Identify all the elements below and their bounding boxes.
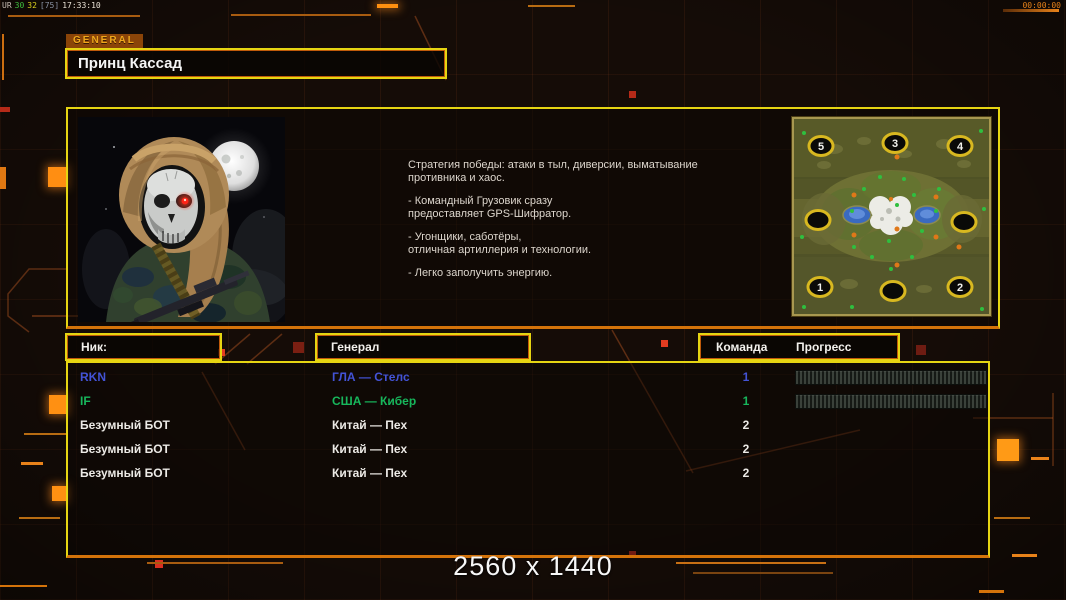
decor-dash — [1031, 457, 1049, 460]
debug-token: [75] — [40, 1, 59, 10]
strategy-line: отличная артиллерия и технологии. — [408, 244, 728, 257]
player-row: Безумный БОТ Китай — Пех 2 — [68, 437, 988, 461]
player-progress-bar — [795, 370, 987, 385]
strategy-line: - Легко заполучить энергию. — [408, 267, 728, 280]
svg-text:1: 1 — [817, 282, 823, 294]
start-position-marker: 3 — [883, 134, 907, 153]
general-portrait — [78, 117, 285, 322]
decor-dash — [0, 167, 6, 189]
strategy-line: - Командный Грузовик сразу — [408, 195, 728, 208]
decor-dash — [377, 4, 398, 8]
player-team: 2 — [718, 418, 774, 432]
debug-clock: 17:33:10 — [62, 1, 101, 10]
player-row: IF США — Кибер 1 — [68, 389, 988, 413]
minimap-image: 5 3 4 — [794, 119, 989, 314]
decor-dash — [21, 462, 43, 465]
strategy-line: предоставляет GPS-Шифратор. — [408, 208, 728, 221]
player-row: Безумный БОТ Китай — Пех 2 — [68, 413, 988, 437]
player-general: Китай — Пех — [332, 418, 718, 432]
strategy-paragraph: Стратегия победы: атаки в тыл, диверсии,… — [408, 159, 728, 185]
decor-square — [916, 345, 926, 355]
svg-text:3: 3 — [892, 138, 898, 150]
decor-dash — [19, 517, 60, 519]
start-position-marker: 5 — [809, 137, 833, 156]
debug-overlay: UR3032[75]17:33:10 — [2, 1, 104, 10]
decor-square — [293, 342, 304, 353]
player-row: Безумный БОТ Китай — Пех 2 — [68, 461, 988, 485]
svg-text:4: 4 — [957, 141, 964, 153]
player-team: 2 — [718, 466, 774, 480]
decor-square — [661, 340, 668, 347]
player-general: Китай — Пех — [332, 466, 718, 480]
player-general: США — Кибер — [332, 394, 718, 408]
column-header-progress: Прогресс — [796, 335, 851, 359]
decor-square — [48, 167, 68, 187]
debug-token: UR — [2, 1, 12, 10]
player-team: 2 — [718, 442, 774, 456]
player-general: Китай — Пех — [332, 442, 718, 456]
start-position-marker — [952, 213, 976, 232]
strategy-paragraph: - Угонщики, саботёры, отличная артиллери… — [408, 231, 728, 257]
column-header-general: Генерал — [315, 333, 531, 361]
player-row: RKN ГЛА — Стелс 1 — [68, 365, 988, 389]
strategy-description: Стратегия победы: атаки в тыл, диверсии,… — [408, 159, 728, 290]
decor-dash — [231, 14, 371, 16]
debug-token: 30 — [15, 1, 25, 10]
match-timer: 00:00:00 — [1022, 1, 1061, 10]
minimap-preview: 5 3 4 — [792, 117, 991, 316]
start-position-marker — [881, 282, 905, 301]
decor-dash — [0, 585, 47, 587]
debug-token: 32 — [27, 1, 37, 10]
column-header-team: Команда — [716, 335, 767, 359]
general-info-panel: Стратегия победы: атаки в тыл, диверсии,… — [66, 107, 1000, 329]
decor-dash — [8, 15, 140, 17]
decor-square — [997, 439, 1019, 461]
strategy-paragraph: - Легко заполучить энергию. — [408, 267, 728, 280]
decor-dash — [2, 34, 4, 80]
decor-dash — [24, 433, 66, 435]
player-nick: IF — [80, 394, 332, 408]
player-team: 1 — [718, 394, 774, 408]
strategy-line: Стратегия победы: атаки в тыл, диверсии,… — [408, 159, 728, 172]
start-position-marker: 2 — [948, 278, 972, 297]
player-nick: RKN — [80, 370, 332, 384]
decor-square — [629, 91, 636, 98]
game-lobby-screen: UR3032[75]17:33:10 00:00:00 GENERAL Прин… — [0, 0, 1066, 600]
strategy-line: - Угонщики, саботёры, — [408, 231, 728, 244]
start-position-marker: 4 — [948, 137, 972, 156]
decor-square — [52, 486, 67, 501]
player-progress-bar — [795, 394, 987, 409]
column-header-nick: Ник: — [65, 333, 222, 361]
decor-dash — [528, 5, 575, 7]
strategy-line: противника и хаос. — [408, 172, 728, 185]
player-general: ГЛА — Стелс — [332, 370, 718, 384]
player-nick: Безумный БОТ — [80, 442, 332, 456]
player-list-panel: RKN ГЛА — Стелс 1 IF США — Кибер 1 Безум… — [66, 361, 990, 558]
decor-dash — [0, 107, 10, 112]
decor-dash — [979, 590, 1004, 593]
decor-dash — [994, 517, 1030, 519]
general-name-title: Принц Кассад — [65, 48, 447, 79]
column-header-team-progress: Команда Прогресс — [698, 333, 900, 361]
resolution-label: 2560 x 1440 — [0, 551, 1066, 582]
player-nick: Безумный БОТ — [80, 466, 332, 480]
player-nick: Безумный БОТ — [80, 418, 332, 432]
start-position-marker: 1 — [808, 278, 832, 297]
svg-text:2: 2 — [957, 282, 963, 294]
start-position-marker — [806, 211, 830, 230]
strategy-paragraph: - Командный Грузовик сразу предоставляет… — [408, 195, 728, 221]
player-team: 1 — [718, 370, 774, 384]
general-tag: GENERAL — [66, 34, 143, 48]
svg-text:5: 5 — [818, 141, 824, 153]
